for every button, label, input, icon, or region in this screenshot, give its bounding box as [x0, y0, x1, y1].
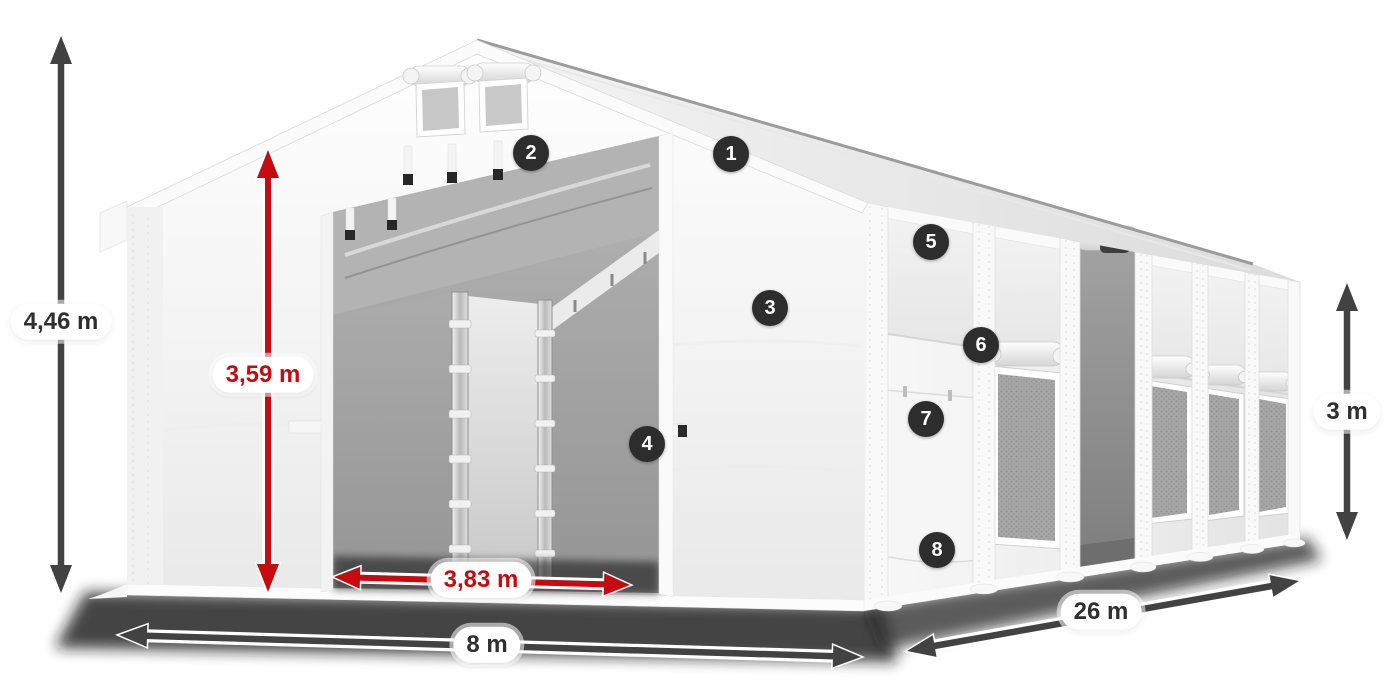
interior-wall-left [333, 294, 452, 588]
callout-marker-7: 7 [908, 401, 944, 437]
through-passage [468, 296, 540, 582]
dimension-label-entrance-width: 3,83 m [431, 562, 532, 598]
callout-marker-2: 2 [513, 135, 549, 171]
mesh-window-1 [985, 342, 1069, 549]
tent-illustration [0, 0, 1400, 700]
corner-post [127, 207, 163, 592]
dimension-label-length: 26 m [1061, 594, 1142, 630]
side-door-opening [1076, 226, 1138, 574]
entrance-opening [321, 133, 673, 597]
dimension-label-width: 8 m [453, 627, 520, 663]
callout-marker-3: 3 [752, 290, 788, 326]
dimension-label-wall-height: 3 m [1313, 394, 1380, 430]
dimension-label-entrance-height: 3,59 m [213, 357, 314, 393]
callout-marker-5: 5 [913, 224, 949, 260]
callout-marker-1: 1 [713, 136, 749, 172]
tent-dimension-diagram: 4,46 m 3,59 m 3,83 m 8 m 26 m 3 m 1 2 3 … [0, 0, 1400, 700]
callout-marker-8: 8 [919, 532, 955, 568]
callout-marker-4: 4 [629, 426, 665, 462]
dimension-label-total-height: 4,46 m [11, 304, 112, 340]
callout-marker-6: 6 [963, 327, 999, 363]
